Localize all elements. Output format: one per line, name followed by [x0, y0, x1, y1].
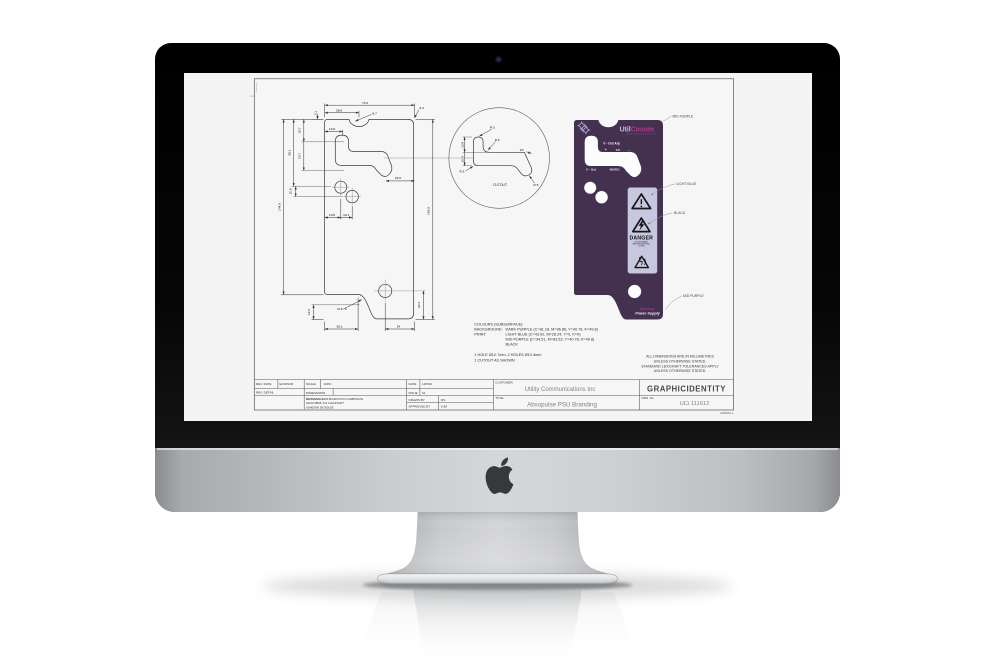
- svg-text:0.1: 0.1: [313, 111, 317, 116]
- svg-text:APPROVED BY: APPROVED BY: [409, 405, 431, 409]
- svg-text:1 HOLE Ø12.7mm, 2 HOLES Ø10.4m: 1 HOLE Ø12.7mm, 2 HOLES Ø10.4mm: [474, 353, 541, 357]
- svg-text:LEXAN 8B35, F12 CLEAR MATT: LEXAN 8B35, F12 CLEAR MATT: [306, 401, 345, 405]
- svg-text:DATE: DATE: [409, 382, 417, 386]
- svg-text:14/5/10: 14/5/10: [422, 382, 432, 386]
- svg-text:9.4: 9.4: [420, 106, 425, 110]
- svg-text:R 5: R 5: [490, 126, 495, 130]
- svg-text:UNLESS OTHERWISE STATED.: UNLESS OTHERWISE STATED.: [654, 369, 707, 373]
- svg-text:TITLE: TITLE: [495, 396, 503, 400]
- svg-text:10.1: 10.1: [343, 213, 349, 217]
- svg-text:24°: 24°: [520, 148, 524, 152]
- svg-text:BACKGROUND:: BACKGROUND:: [474, 328, 502, 332]
- svg-text:ECR/NCR: ECR/NCR: [280, 382, 295, 386]
- svg-text:+: +: [605, 148, 607, 152]
- svg-text:CUTOUT: CUTOUT: [493, 183, 507, 187]
- svg-text:UNLESS OTHERWISE STATED.: UNLESS OTHERWISE STATED.: [654, 360, 707, 364]
- svg-text:ALL DIMENSIONS ARE IN MILLIMET: ALL DIMENSIONS ARE IN MILLIMETRES: [646, 355, 714, 359]
- svg-text:MID PURPLE: MID PURPLE: [683, 294, 704, 298]
- svg-text:R 5: R 5: [460, 170, 465, 174]
- svg-text:163.9: 163.9: [426, 207, 430, 215]
- svg-text:23.7: 23.7: [298, 153, 302, 159]
- svg-text:V - Out Adj: V - Out Adj: [603, 141, 619, 145]
- svg-text:13.8: 13.8: [329, 213, 335, 217]
- svg-text:1 CUTOUT AS SHOWN: 1 CUTOUT AS SHOWN: [474, 358, 515, 362]
- svg-text:10.5: 10.5: [289, 188, 293, 194]
- svg-text:68VDC: 68VDC: [610, 168, 621, 172]
- svg-text:Power Supply: Power Supply: [635, 312, 660, 316]
- svg-text:28.8: 28.8: [336, 108, 342, 112]
- svg-text:DRG. No: DRG. No: [642, 396, 655, 400]
- svg-text:01: 01: [422, 391, 426, 395]
- svg-text:Utility Communications Inc: Utility Communications Inc: [525, 387, 596, 393]
- svg-text:–: –: [628, 148, 630, 152]
- svg-text:24.0: 24.0: [395, 176, 401, 180]
- svg-text:26.1: 26.1: [336, 325, 342, 329]
- svg-text:13.8: 13.8: [460, 142, 464, 148]
- svg-text:LIGHT BLUE: LIGHT BLUE: [677, 182, 697, 186]
- svg-text:100%: 100%: [324, 382, 332, 386]
- svg-text:STANDARD LEXICRAFT TOLERANCES: STANDARD LEXICRAFT TOLERANCES APPLY: [641, 364, 719, 368]
- svg-text:ISSUE: ISSUE: [409, 391, 418, 395]
- svg-text:RS: RS: [441, 398, 445, 402]
- svg-text:REV. DATE: REV. DATE: [256, 382, 272, 386]
- svg-text:MID PURPLE: MID PURPLE: [673, 114, 694, 118]
- svg-text:55.1: 55.1: [287, 149, 291, 155]
- svg-text:Switching: Switching: [640, 307, 655, 311]
- svg-text:COLOURS (SUBSURFACE):: COLOURS (SUBSURFACE):: [474, 323, 523, 327]
- svg-text:DRAWN BY: DRAWN BY: [409, 398, 425, 402]
- svg-text:CUSTOMER: CUSTOMER: [495, 381, 513, 385]
- svg-text:V - Out: V - Out: [586, 168, 596, 172]
- svg-text:KJM: KJM: [441, 405, 448, 409]
- svg-text:14.8: 14.8: [329, 127, 335, 131]
- svg-text:COVER: COVER: [638, 246, 645, 248]
- svg-text:BLACK: BLACK: [674, 211, 686, 215]
- svg-text:R 6.75: R 6.75: [338, 307, 347, 311]
- svg-text:UCi 111612: UCi 111612: [680, 401, 710, 407]
- svg-text:DARK PURPLE (C=81.18, M=96.86,: DARK PURPLE (C=81.18, M=96.86, Y=40.78, …: [506, 328, 599, 332]
- svg-text:144.9: 144.9: [277, 203, 281, 211]
- svg-text:8.7: 8.7: [373, 112, 378, 116]
- svg-text:10.4: 10.4: [460, 156, 464, 162]
- svg-text:24: 24: [397, 325, 401, 329]
- svg-text:ADHESIVE 3M 300LSE: ADHESIVE 3M 300LSE: [306, 405, 334, 409]
- svg-text:R 5: R 5: [534, 183, 539, 187]
- svg-text:MID PURPLE (C=34.51, M=83.53,: MID PURPLE (C=34.51, M=83.53, Y=40.78, K…: [506, 338, 596, 342]
- svg-text:MATERIALS:: MATERIALS:: [306, 397, 325, 401]
- svg-text:BLACK: BLACK: [506, 343, 519, 347]
- svg-text:DIMENSIONS: DIMENSIONS: [306, 391, 325, 395]
- svg-text:R 6: R 6: [495, 138, 500, 142]
- svg-text:22.4: 22.4: [417, 302, 421, 308]
- svg-text:18.7: 18.7: [298, 127, 302, 133]
- svg-text:GRAPHICIDENTITY: GRAPHICIDENTITY: [647, 385, 726, 394]
- svg-text:T.P.: T.P.: [616, 148, 621, 152]
- svg-text:SCALE: SCALE: [306, 382, 316, 386]
- svg-text:PRINT:: PRINT:: [474, 333, 486, 337]
- svg-text:REV. DETAIL: REV. DETAIL: [256, 391, 274, 395]
- svg-text:12.2: 12.2: [307, 309, 311, 315]
- svg-text:250 MICRON POLYCARBONATE: 250 MICRON POLYCARBONATE: [324, 397, 363, 401]
- svg-text:LIGHT BLUE (C=43.92, M=28.24,: LIGHT BLUE (C=43.92, M=28.24, Y=0, K=0): [506, 333, 582, 337]
- svg-text:GD054/Iss.1: GD054/Iss.1: [720, 412, 734, 415]
- svg-text:Absopulse PSU Branding: Absopulse PSU Branding: [527, 401, 597, 408]
- svg-text:www.utilcosom.com: www.utilcosom.com: [626, 132, 656, 135]
- svg-text:73.3: 73.3: [362, 101, 368, 105]
